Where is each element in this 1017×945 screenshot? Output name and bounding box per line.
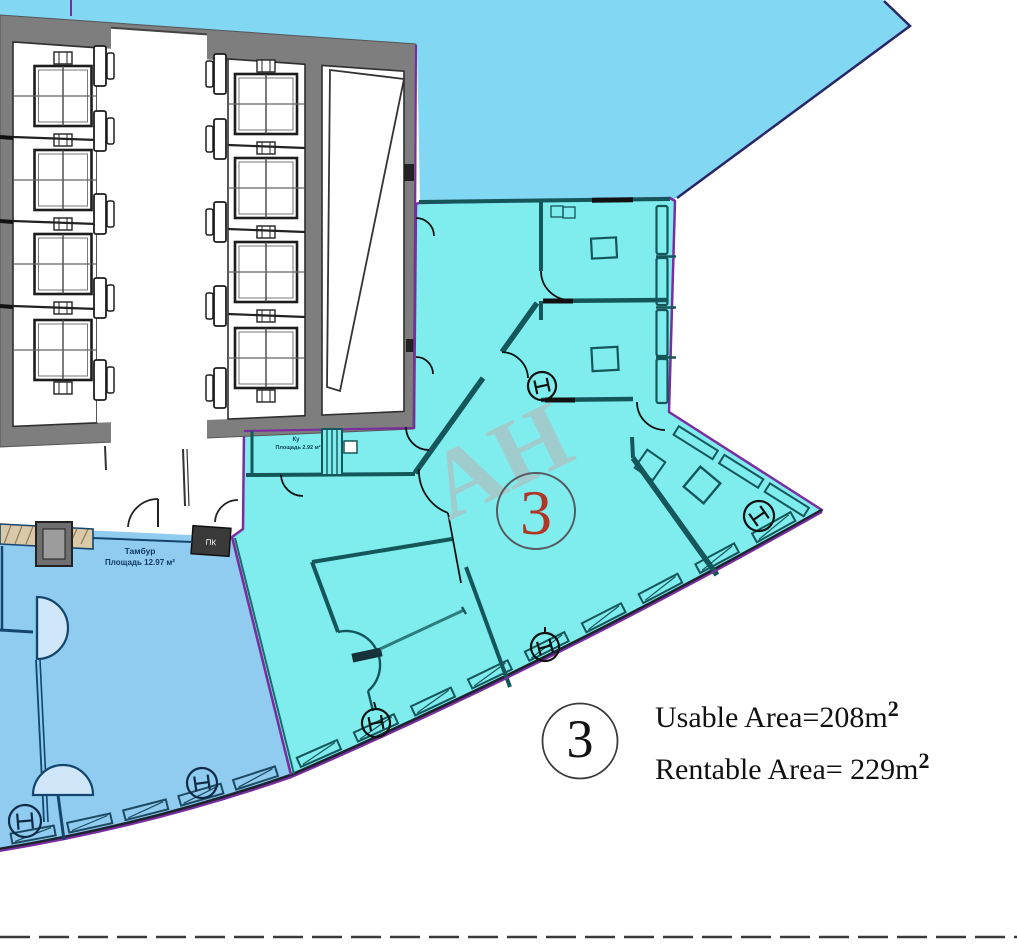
svg-text:Usable Area=208m2: Usable Area=208m2 bbox=[655, 696, 899, 734]
svg-text:Площадь 12.97 м²: Площадь 12.97 м² bbox=[105, 558, 175, 567]
svg-text:3: 3 bbox=[520, 477, 552, 548]
svg-text:ПК: ПК bbox=[205, 538, 216, 548]
svg-text:Ку: Ку bbox=[293, 437, 301, 443]
svg-text:Тамбур: Тамбур bbox=[125, 546, 156, 556]
svg-text:3: 3 bbox=[567, 709, 594, 769]
svg-text:Rentable Area= 229m2: Rentable Area= 229m2 bbox=[655, 748, 930, 786]
svg-text:Площадь 2.92 м²: Площадь 2.92 м² bbox=[275, 444, 320, 451]
